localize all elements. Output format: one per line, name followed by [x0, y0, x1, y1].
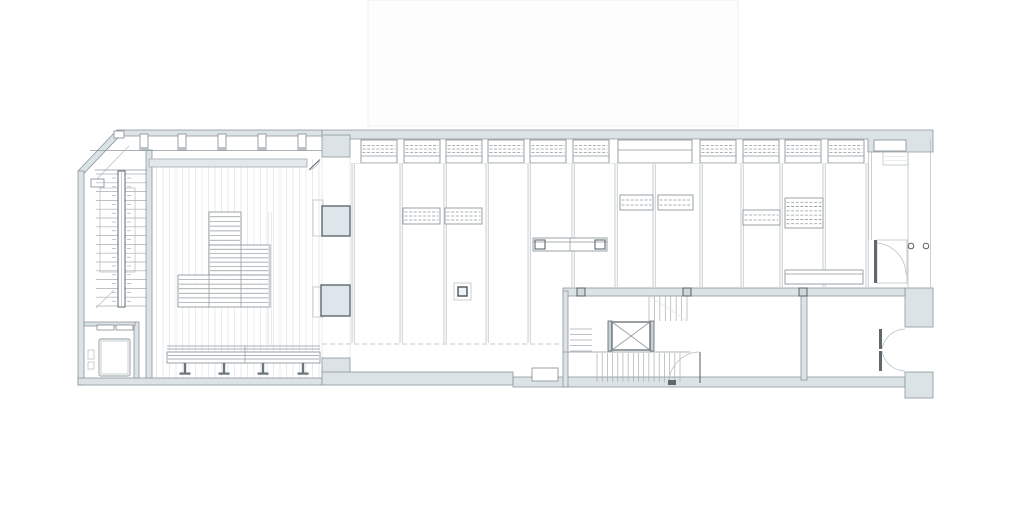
core-door-stop — [668, 380, 676, 385]
service-room — [88, 325, 133, 376]
entrance-double-door — [879, 329, 905, 371]
column-with-floorbox — [454, 283, 471, 300]
back-wall — [563, 288, 905, 296]
left-staircase — [95, 170, 147, 308]
entry-swing-top — [882, 329, 905, 349]
floor-plan-drawing — [0, 0, 1024, 512]
bottom-wall-right — [513, 377, 905, 387]
upper-volume-outline — [368, 0, 738, 126]
window-ledge — [149, 159, 307, 167]
wall-step-top — [322, 135, 350, 157]
entry-pier-top — [905, 288, 933, 327]
door-leaf — [874, 240, 877, 283]
entry-swing-bottom — [882, 351, 905, 371]
entry-leaf-bottom — [879, 351, 882, 371]
bottom-wall-niche — [532, 368, 558, 381]
perimeter-shelf-row — [361, 140, 864, 163]
service-door-leaf-left — [97, 325, 114, 330]
back-wall-desk — [785, 270, 863, 284]
top-wall-niche — [874, 140, 906, 151]
core-left-wall — [563, 291, 568, 387]
entry-pier-bottom — [905, 372, 933, 398]
stair-elevator-core — [563, 296, 690, 382]
floor-plan-sheet — [0, 0, 1024, 512]
stair-hall-divider-wall — [146, 150, 152, 378]
entry-bollards — [908, 243, 929, 249]
fixture-small-2 — [88, 362, 94, 369]
vertical-shelf-rails — [352, 163, 868, 343]
wall-niches — [532, 140, 906, 381]
bottom-wall-mid — [322, 372, 513, 385]
fixture-small-1 — [88, 350, 94, 359]
display-table — [533, 238, 607, 251]
facade-corner-post — [114, 131, 124, 138]
service-room-right-wall — [134, 322, 139, 378]
service-door-leaf-right — [116, 325, 133, 330]
equipment-unit — [99, 339, 130, 376]
backroom-divider-wall — [801, 296, 807, 380]
door-frame — [877, 240, 907, 283]
left-wall — [78, 171, 84, 385]
wall-counter — [618, 140, 692, 163]
column-line — [322, 157, 350, 358]
bottom-wall-left — [78, 378, 322, 385]
vestibule-door — [874, 240, 907, 283]
door-swing — [877, 243, 906, 275]
entry-leaf-top — [879, 329, 882, 349]
